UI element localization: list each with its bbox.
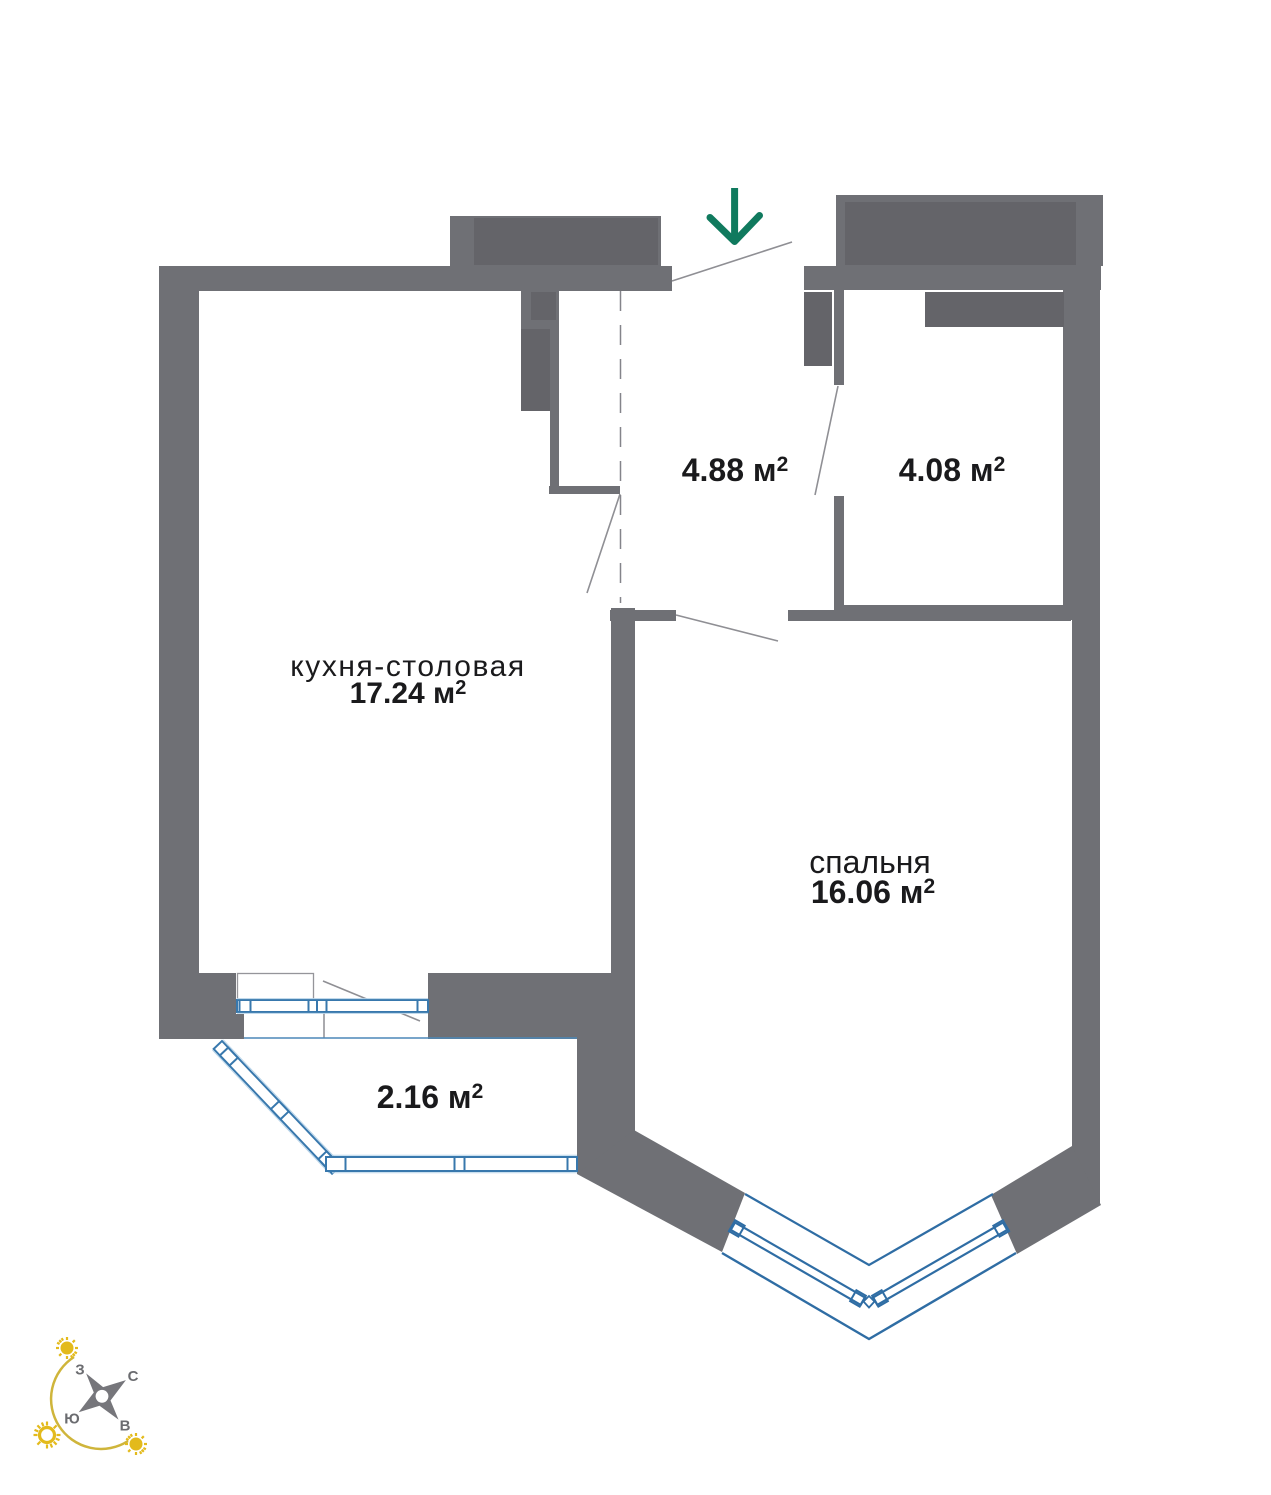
svg-text:17.24 м2: 17.24 м2 bbox=[350, 677, 467, 710]
svg-text:В: В bbox=[120, 1418, 131, 1435]
svg-text:4.88 м2: 4.88 м2 bbox=[682, 452, 789, 488]
svg-text:16.06 м2: 16.06 м2 bbox=[811, 874, 935, 910]
svg-text:З: З bbox=[75, 1362, 84, 1379]
svg-text:4.08 м2: 4.08 м2 bbox=[899, 452, 1006, 488]
svg-text:2.16 м2: 2.16 м2 bbox=[377, 1079, 484, 1115]
svg-text:Ю: Ю bbox=[64, 1411, 79, 1428]
svg-text:С: С bbox=[128, 1368, 139, 1385]
